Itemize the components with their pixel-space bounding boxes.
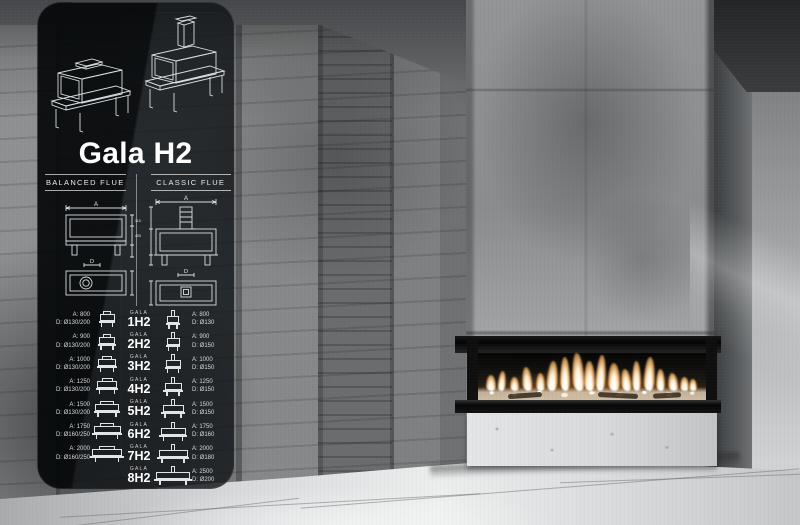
model-row: A: 1000D: Ø130/200 GALA3H2 A: 1000D: Ø15… <box>44 353 233 375</box>
spec-balanced: A: 900D: Ø130/200 <box>44 333 90 349</box>
panel-title: Gala H2 <box>38 139 233 169</box>
spec-classic: A: 1500D: Ø150 <box>192 401 229 417</box>
classic-flue-stove-drawing-icon <box>142 17 228 143</box>
stove-classic-icon <box>167 332 180 351</box>
scene: Gala H2 BALANCED FLUE CLASSIC FLUE A 110 <box>0 0 800 525</box>
model-row: A: 800D: Ø130/200 GALA1H2 A: 800D: Ø130 <box>44 308 233 330</box>
spec-classic: A: 900D: Ø150 <box>192 333 229 349</box>
model-row: GALA8H2 A: 2500D: Ø200 <box>44 465 233 487</box>
diagram-flue-label: D <box>90 259 94 265</box>
stove-classic-icon <box>156 466 190 485</box>
model-label: GALA4H2 <box>124 377 154 396</box>
stove-balanced-icon <box>98 356 116 372</box>
spec-classic: A: 1750D: Ø160 <box>192 423 229 439</box>
model-label: GALA8H2 <box>124 466 154 485</box>
stove-balanced-icon <box>95 401 119 417</box>
spec-balanced: A: 1250D: Ø130/200 <box>44 378 90 394</box>
spec-panel: Gala H2 BALANCED FLUE CLASSIC FLUE A 110 <box>37 2 234 489</box>
spec-classic: A: 1000D: Ø150 <box>192 356 229 372</box>
stove-classic-icon <box>161 422 186 441</box>
model-label: GALA6H2 <box>124 422 154 441</box>
diagram-width-label: A <box>94 202 98 208</box>
model-label: GALA5H2 <box>124 399 154 418</box>
model-label: GALA7H2 <box>124 444 154 463</box>
stove-balanced-icon <box>100 311 115 327</box>
spec-classic: A: 800D: Ø130 <box>192 311 229 327</box>
model-row: A: 1250D: Ø130/200 GALA4H2 A: 1250D: Ø15… <box>44 375 233 397</box>
model-label: GALA1H2 <box>124 310 154 329</box>
stove-balanced-icon <box>92 446 122 462</box>
spec-balanced: A: 1750D: Ø160/250 <box>44 423 90 439</box>
spec-balanced: A: 1000D: Ø130/200 <box>44 356 90 372</box>
model-row: A: 2000D: Ø160/250 GALA7H2 A: 2000D: Ø18… <box>44 442 233 464</box>
stove-classic-icon <box>165 377 182 396</box>
column-header-classic: CLASSIC FLUE <box>151 174 232 191</box>
stove-balanced-icon <box>94 423 121 439</box>
stove-classic-icon <box>159 444 188 463</box>
spec-balanced: A: 2000D: Ø160/250 <box>44 445 90 461</box>
spec-balanced: A: 800D: Ø130/200 <box>44 311 90 327</box>
model-row: A: 900D: Ø130/200 GALA2H2 A: 900D: Ø150 <box>44 330 233 352</box>
spec-classic: A: 2000D: Ø180 <box>192 445 229 461</box>
stove-classic-icon <box>167 310 179 329</box>
dimension-diagram-classic: A D <box>148 193 228 311</box>
model-row: A: 1750D: Ø160/250 GALA6H2 A: 1750D: Ø16… <box>44 420 233 442</box>
spec-balanced: A: 1500D: Ø130/200 <box>44 401 90 417</box>
stove-classic-icon <box>166 354 181 373</box>
column-headers: BALANCED FLUE CLASSIC FLUE <box>45 174 231 191</box>
stove-balanced-icon <box>99 334 115 350</box>
spec-classic: A: 2500D: Ø200 <box>192 468 229 484</box>
stove-balanced-icon <box>97 378 117 394</box>
model-row: A: 1500D: Ø130/200 GALA5H2 A: 1500D: Ø15… <box>44 398 233 420</box>
spec-classic: A: 1250D: Ø150 <box>192 378 229 394</box>
diagram-dim: 110 <box>135 219 141 223</box>
model-label: GALA2H2 <box>124 332 154 351</box>
diagram-dim: 400 <box>135 234 141 238</box>
column-header-balanced: BALANCED FLUE <box>45 174 126 191</box>
dimension-diagram-balanced: A 110 400 D <box>54 199 140 307</box>
stove-classic-icon <box>163 399 184 418</box>
model-label: GALA3H2 <box>124 354 154 373</box>
balanced-flue-stove-drawing-icon <box>50 51 132 143</box>
diagram-width-label: A <box>184 196 188 202</box>
diagram-flue-label: D <box>184 269 188 275</box>
model-list: A: 800D: Ø130/200 GALA1H2 A: 800D: Ø130 … <box>44 308 233 487</box>
